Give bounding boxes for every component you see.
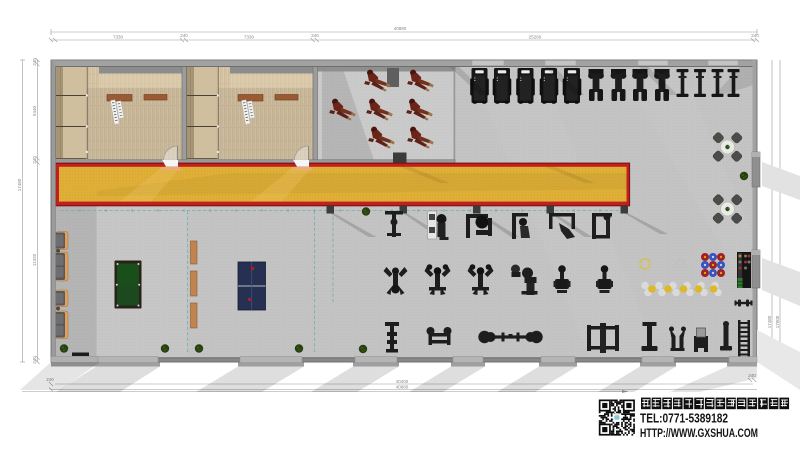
svg-text:HTTP://WWW.GXSHUA.COM: HTTP://WWW.GXSHUA.COM	[640, 428, 758, 440]
svg-text:40880: 40880	[394, 26, 407, 31]
svg-text:240: 240	[32, 156, 37, 164]
svg-text:25260: 25260	[529, 35, 542, 40]
svg-text:7330: 7330	[113, 35, 124, 40]
svg-text:11320: 11320	[32, 253, 37, 266]
svg-text:17000: 17000	[775, 315, 780, 328]
svg-text:240: 240	[32, 58, 37, 66]
svg-text:40880: 40880	[396, 385, 409, 390]
svg-text:TEL:0771-5389182: TEL:0771-5389182	[640, 412, 728, 426]
svg-text:240: 240	[311, 33, 319, 38]
svg-text:40400: 40400	[396, 379, 409, 384]
svg-text:240: 240	[32, 356, 37, 364]
svg-text:7330: 7330	[244, 35, 255, 40]
svg-text:240: 240	[751, 33, 759, 38]
svg-text:240: 240	[180, 33, 188, 38]
svg-text:17480: 17480	[17, 178, 22, 191]
svg-text:17480: 17480	[767, 315, 772, 328]
svg-text:5440: 5440	[32, 105, 37, 116]
